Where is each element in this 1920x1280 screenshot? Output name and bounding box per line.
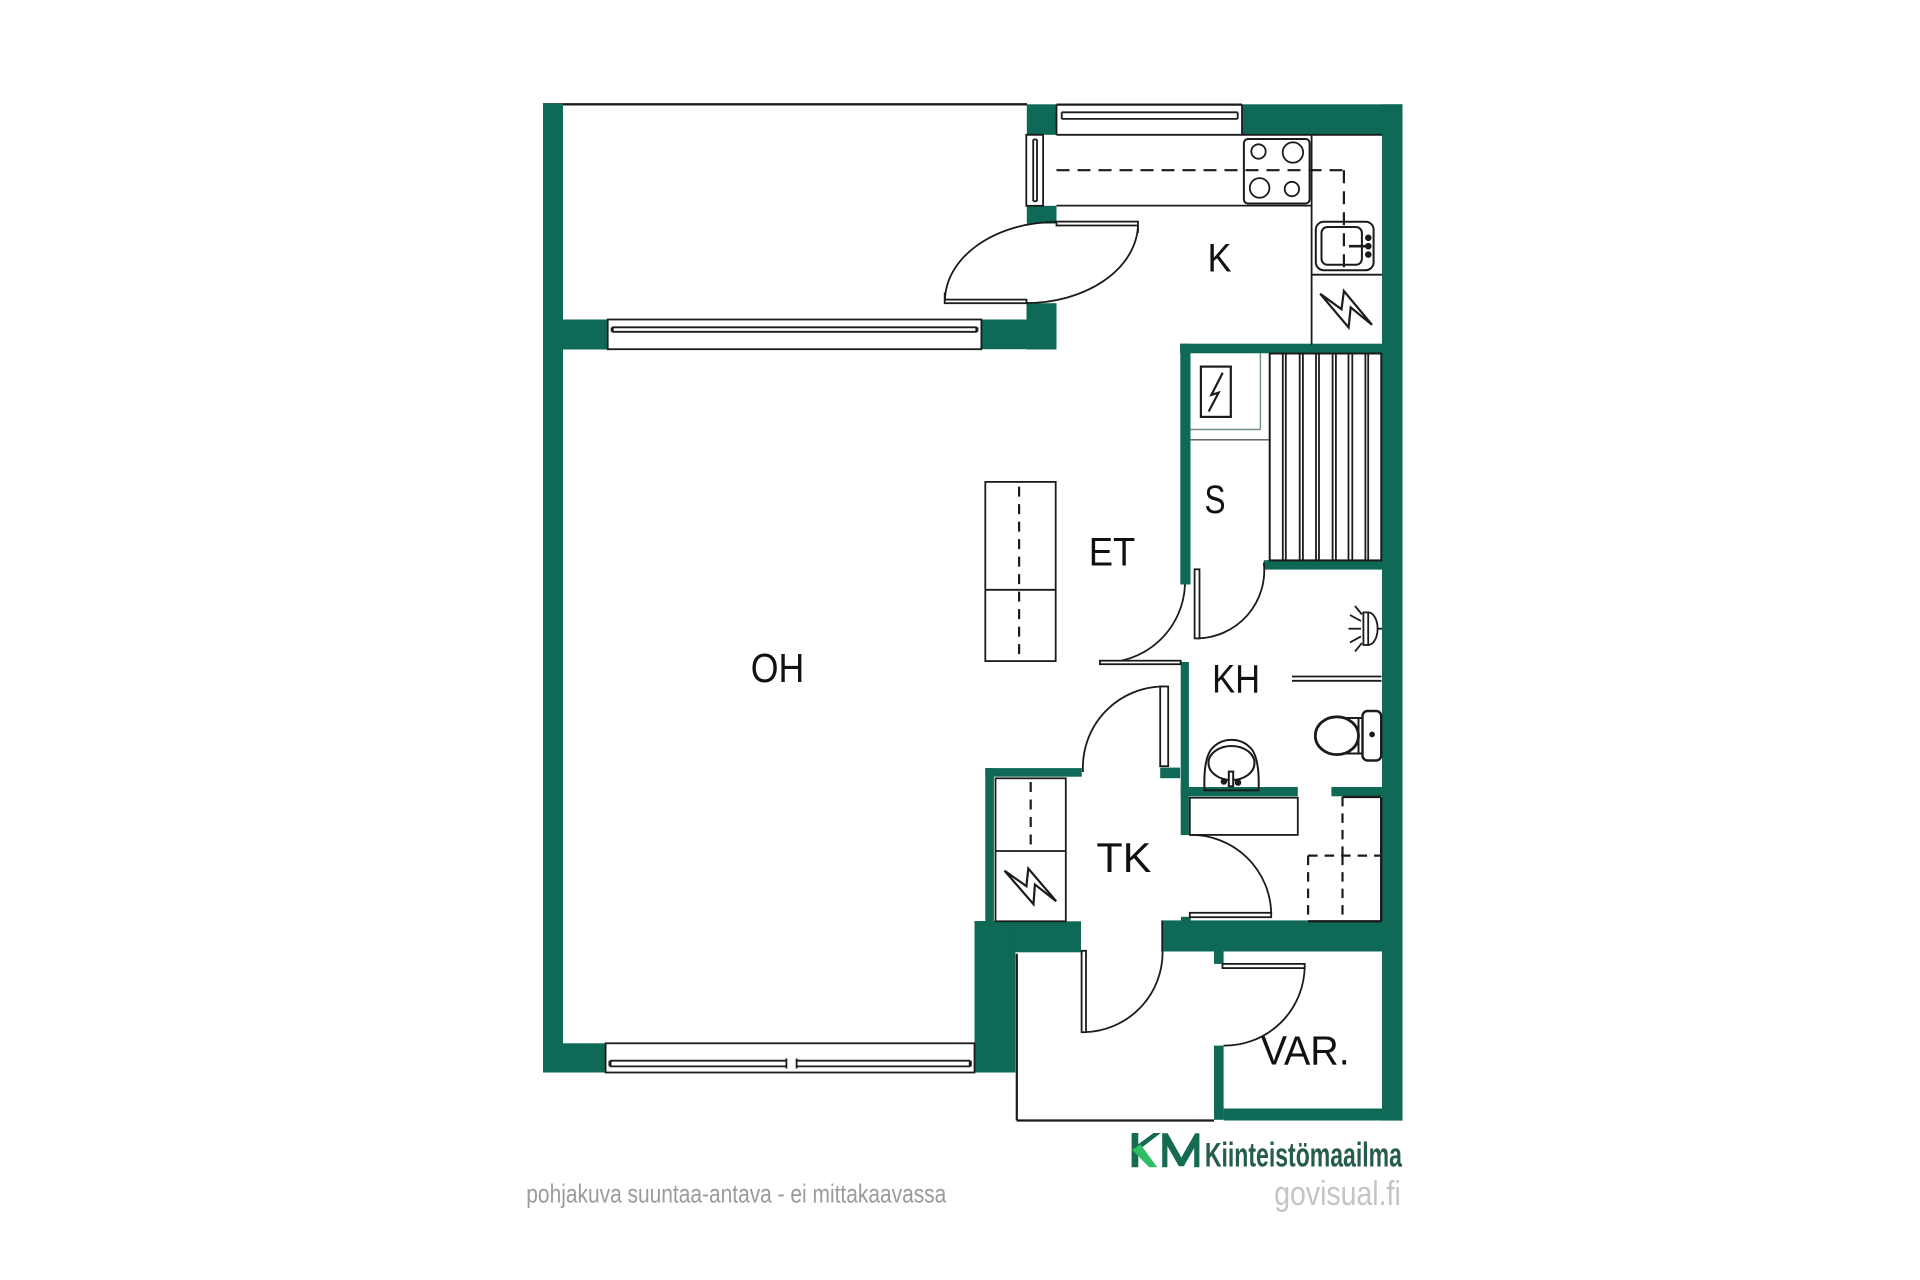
- svg-text:OH: OH: [751, 645, 805, 691]
- svg-text:TK: TK: [1096, 834, 1151, 881]
- svg-text:govisual.fi: govisual.fi: [1274, 1175, 1401, 1213]
- svg-text:K: K: [1208, 237, 1232, 281]
- svg-text:S: S: [1205, 478, 1226, 522]
- svg-text:ET: ET: [1089, 530, 1136, 574]
- svg-text:VAR.: VAR.: [1261, 1028, 1350, 1074]
- svg-text:pohjakuva suuntaa-antava - ei: pohjakuva suuntaa-antava - ei mittakaava…: [526, 1179, 946, 1209]
- svg-text:Kiinteistömaailma: Kiinteistömaailma: [1205, 1136, 1403, 1174]
- svg-text:KH: KH: [1212, 658, 1260, 702]
